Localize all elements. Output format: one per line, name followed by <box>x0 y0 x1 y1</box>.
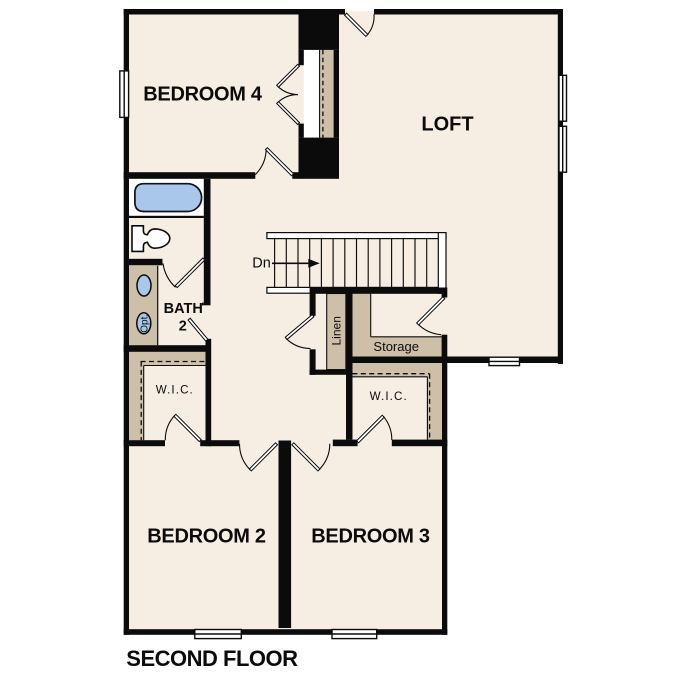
svg-text:BEDROOM 2: BEDROOM 2 <box>147 526 266 548</box>
svg-text:W.I.C.: W.I.C. <box>370 390 408 403</box>
svg-text:Dn: Dn <box>252 256 271 272</box>
svg-text:2: 2 <box>179 319 187 335</box>
svg-text:LOFT: LOFT <box>421 114 473 136</box>
svg-text:W.I.C.: W.I.C. <box>156 383 194 396</box>
svg-text:Opt.: Opt. <box>140 314 151 333</box>
svg-text:BATH: BATH <box>164 301 203 317</box>
svg-text:SECOND FLOOR: SECOND FLOOR <box>126 646 298 671</box>
svg-text:Linen: Linen <box>330 316 344 345</box>
svg-text:BEDROOM 3: BEDROOM 3 <box>311 526 430 548</box>
svg-text:Storage: Storage <box>373 339 419 354</box>
svg-text:BEDROOM 4: BEDROOM 4 <box>143 84 263 106</box>
